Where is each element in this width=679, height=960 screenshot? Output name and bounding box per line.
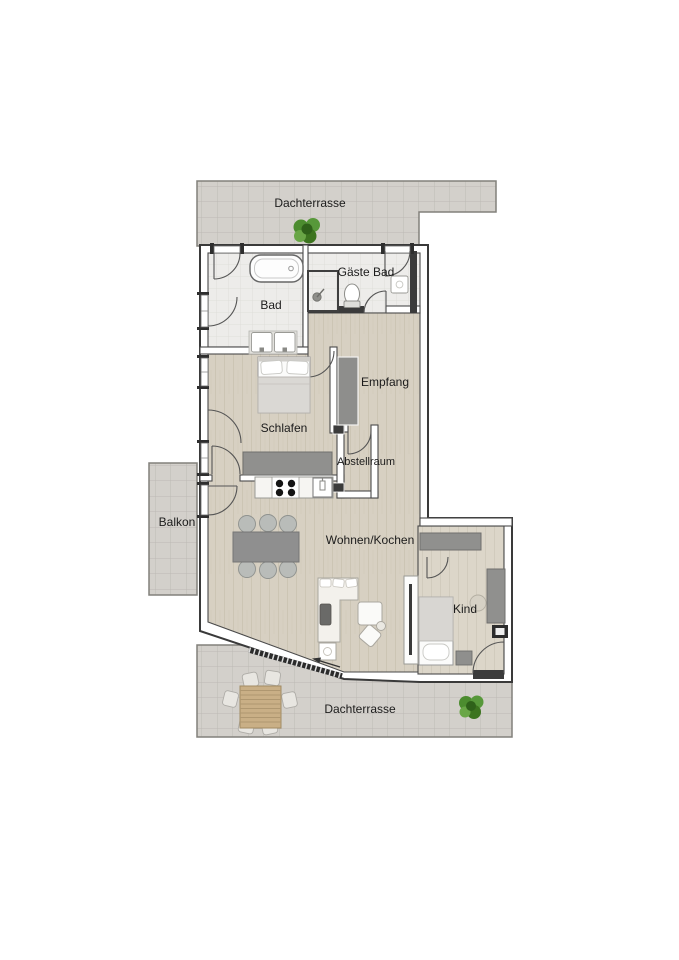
kind-wardrobe xyxy=(420,533,481,550)
label-bad: Bad xyxy=(260,298,281,312)
label-dachterrasse-bottom: Dachterrasse xyxy=(324,702,396,716)
double-sink xyxy=(249,331,297,354)
hall-closet xyxy=(338,357,358,425)
floor-plan-page: Dachterrasse Gäste Bad Bad Schlafen Empf… xyxy=(0,0,679,960)
kind-desk xyxy=(487,569,505,623)
kind-bed xyxy=(419,597,453,665)
kitchen-counter xyxy=(255,477,333,498)
dining-set xyxy=(233,515,299,579)
label-balkon: Balkon xyxy=(159,515,196,529)
shower xyxy=(308,271,338,311)
label-abstellraum: Abstellraum xyxy=(337,456,395,468)
toilet xyxy=(344,284,360,308)
label-wohnen-kochen: Wohnen/Kochen xyxy=(326,533,415,547)
sliding-door-kind xyxy=(404,576,418,664)
kind-nightstand xyxy=(456,651,472,665)
floor-plan-svg: Dachterrasse Gäste Bad Bad Schlafen Empf… xyxy=(0,0,679,960)
roof-terrace-top xyxy=(197,181,496,246)
plant-bottom xyxy=(459,696,484,720)
label-empfang: Empfang xyxy=(361,375,409,389)
double-bed xyxy=(258,357,310,413)
label-kind: Kind xyxy=(453,602,477,616)
label-schlafen: Schlafen xyxy=(261,421,308,435)
bathtub xyxy=(250,255,303,282)
label-gaeste-bad: Gäste Bad xyxy=(338,265,395,279)
bedroom-wardrobe xyxy=(243,452,332,475)
balcony xyxy=(149,463,197,595)
label-dachterrasse-top: Dachterrasse xyxy=(274,196,346,210)
